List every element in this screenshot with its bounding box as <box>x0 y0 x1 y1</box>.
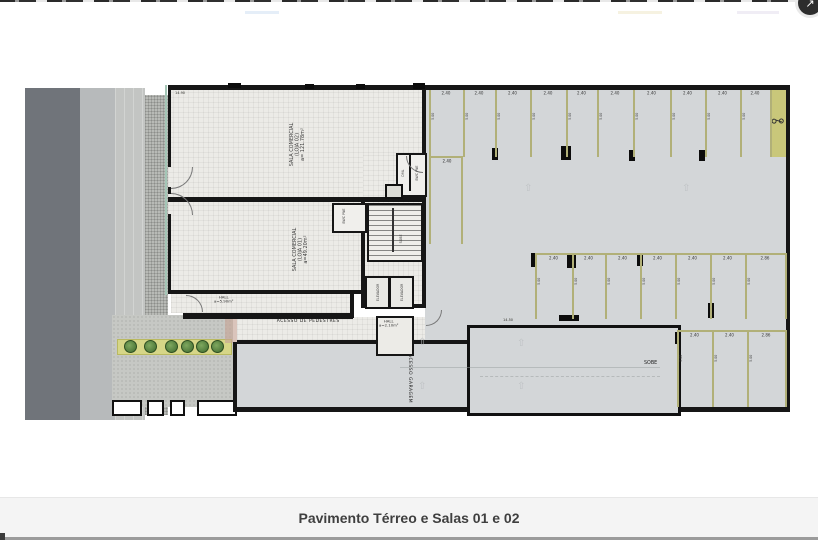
bush-icon <box>196 340 209 353</box>
floor-plan-viewer: ↗ <box>0 0 818 540</box>
caption-text: Pavimento Térreo e Salas 01 e 02 <box>298 510 519 526</box>
bush-icon <box>124 340 137 353</box>
bush-icon <box>165 340 178 353</box>
bush-icon <box>211 340 224 353</box>
bush-icon <box>181 340 194 353</box>
bush-layer <box>0 0 818 497</box>
floor-plan-image[interactable]: ELEVADOR ELEVADOR 2.40 <box>0 0 818 497</box>
caption-bar: Pavimento Térreo e Salas 01 e 02 <box>0 497 818 540</box>
bottom-left-artifact <box>0 533 5 540</box>
bush-icon <box>144 340 157 353</box>
